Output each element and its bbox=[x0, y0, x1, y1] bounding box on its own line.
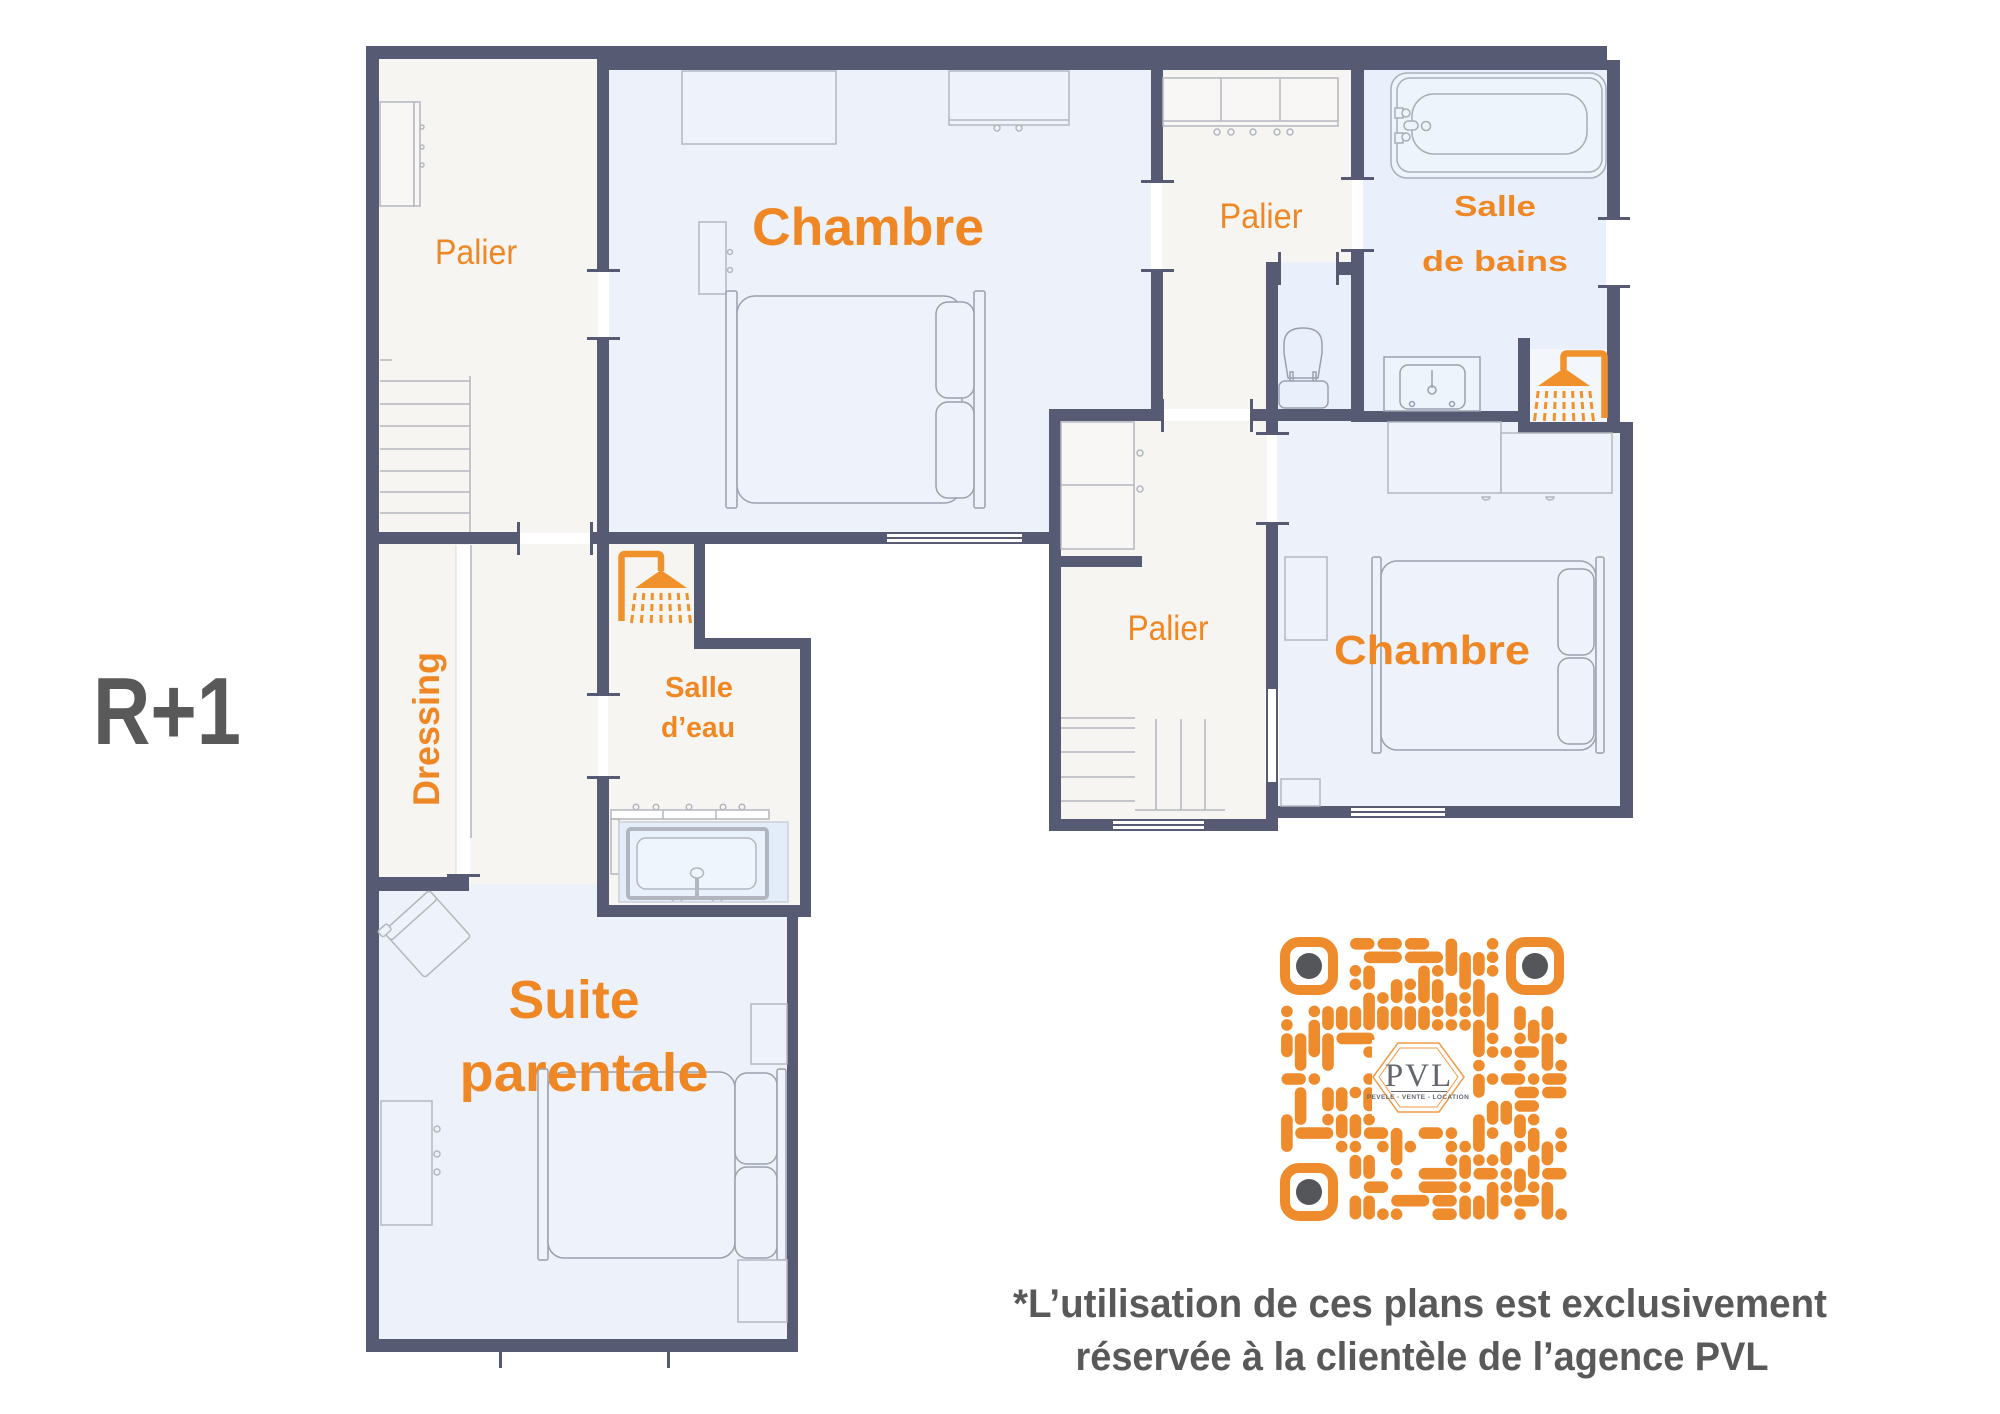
svg-text:de bains: de bains bbox=[1422, 246, 1568, 278]
svg-text:Salle: Salle bbox=[665, 672, 733, 704]
svg-text:Palier: Palier bbox=[1128, 609, 1209, 648]
svg-text:réservée à la clientèle de l’a: réservée à la clientèle de l’agence PVL bbox=[1076, 1335, 1769, 1379]
svg-text:Chambre: Chambre bbox=[752, 198, 984, 257]
svg-text:Palier: Palier bbox=[435, 233, 517, 272]
svg-text:Dressing: Dressing bbox=[406, 652, 447, 806]
svg-text:R+1: R+1 bbox=[93, 658, 241, 765]
svg-text:Suite: Suite bbox=[509, 970, 640, 1030]
svg-text:*L’utilisation de ces plans es: *L’utilisation de ces plans est exclusiv… bbox=[1013, 1282, 1827, 1326]
svg-text:PEVELE - VENTE - LOCATION: PEVELE - VENTE - LOCATION bbox=[1367, 1094, 1469, 1101]
svg-text:d’eau: d’eau bbox=[661, 712, 735, 744]
svg-text:Chambre: Chambre bbox=[1334, 627, 1530, 673]
svg-text:PVL: PVL bbox=[1385, 1058, 1453, 1094]
svg-text:Salle: Salle bbox=[1454, 191, 1536, 223]
svg-text:parentale: parentale bbox=[460, 1043, 709, 1103]
svg-text:Palier: Palier bbox=[1220, 197, 1303, 236]
